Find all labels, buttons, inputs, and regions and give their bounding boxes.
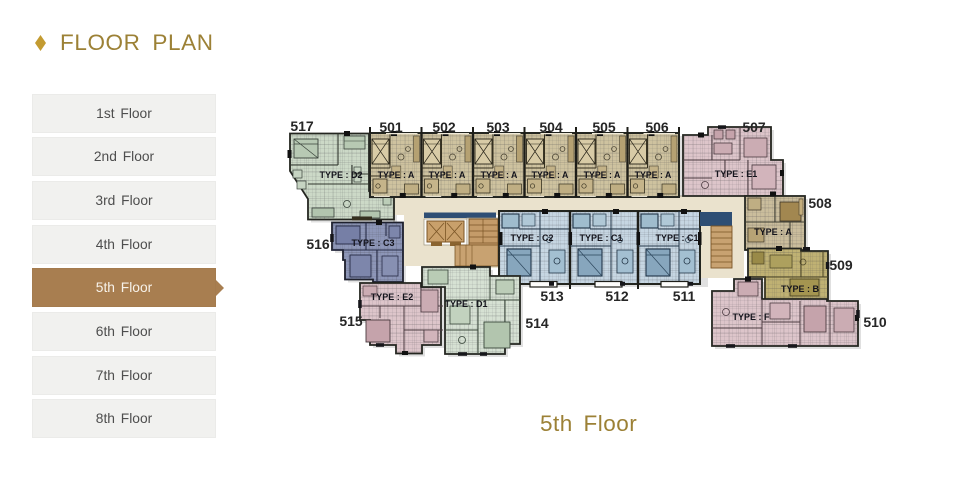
svg-text:506: 506	[645, 119, 669, 135]
svg-text:TYPE : A: TYPE : A	[481, 170, 518, 180]
svg-text:TYPE : B: TYPE : B	[781, 284, 820, 294]
svg-text:513: 513	[540, 288, 564, 304]
svg-text:TYPE : C1: TYPE : C1	[579, 233, 622, 243]
svg-text:TYPE : F: TYPE : F	[732, 312, 770, 322]
svg-text:509: 509	[829, 257, 853, 273]
svg-text:516: 516	[306, 236, 330, 252]
svg-text:TYPE : C1: TYPE : C1	[655, 233, 698, 243]
svg-text:TYPE : A: TYPE : A	[378, 170, 415, 180]
svg-text:505: 505	[592, 119, 616, 135]
svg-text:501: 501	[379, 119, 403, 135]
svg-text:TYPE : D1: TYPE : D1	[444, 299, 487, 309]
svg-text:TYPE : A: TYPE : A	[429, 170, 466, 180]
svg-text:507: 507	[742, 119, 766, 135]
svg-text:514: 514	[525, 315, 549, 331]
svg-text:504: 504	[539, 119, 563, 135]
svg-text:TYPE : C2: TYPE : C2	[510, 233, 553, 243]
svg-text:TYPE : D2: TYPE : D2	[319, 170, 362, 180]
svg-text:TYPE : C3: TYPE : C3	[351, 238, 394, 248]
svg-text:TYPE : A: TYPE : A	[532, 170, 569, 180]
svg-text:515: 515	[339, 313, 363, 329]
svg-text:517: 517	[290, 118, 314, 134]
svg-text:508: 508	[808, 195, 832, 211]
svg-text:TYPE : A: TYPE : A	[635, 170, 672, 180]
svg-text:510: 510	[863, 314, 887, 330]
svg-text:511: 511	[673, 288, 696, 304]
svg-text:512: 512	[605, 288, 629, 304]
svg-text:TYPE : E2: TYPE : E2	[371, 292, 414, 302]
svg-text:TYPE : A: TYPE : A	[754, 227, 792, 237]
svg-text:TYPE : E1: TYPE : E1	[715, 169, 758, 179]
svg-text:TYPE : A: TYPE : A	[584, 170, 621, 180]
svg-text:503: 503	[486, 119, 510, 135]
svg-text:502: 502	[432, 119, 456, 135]
